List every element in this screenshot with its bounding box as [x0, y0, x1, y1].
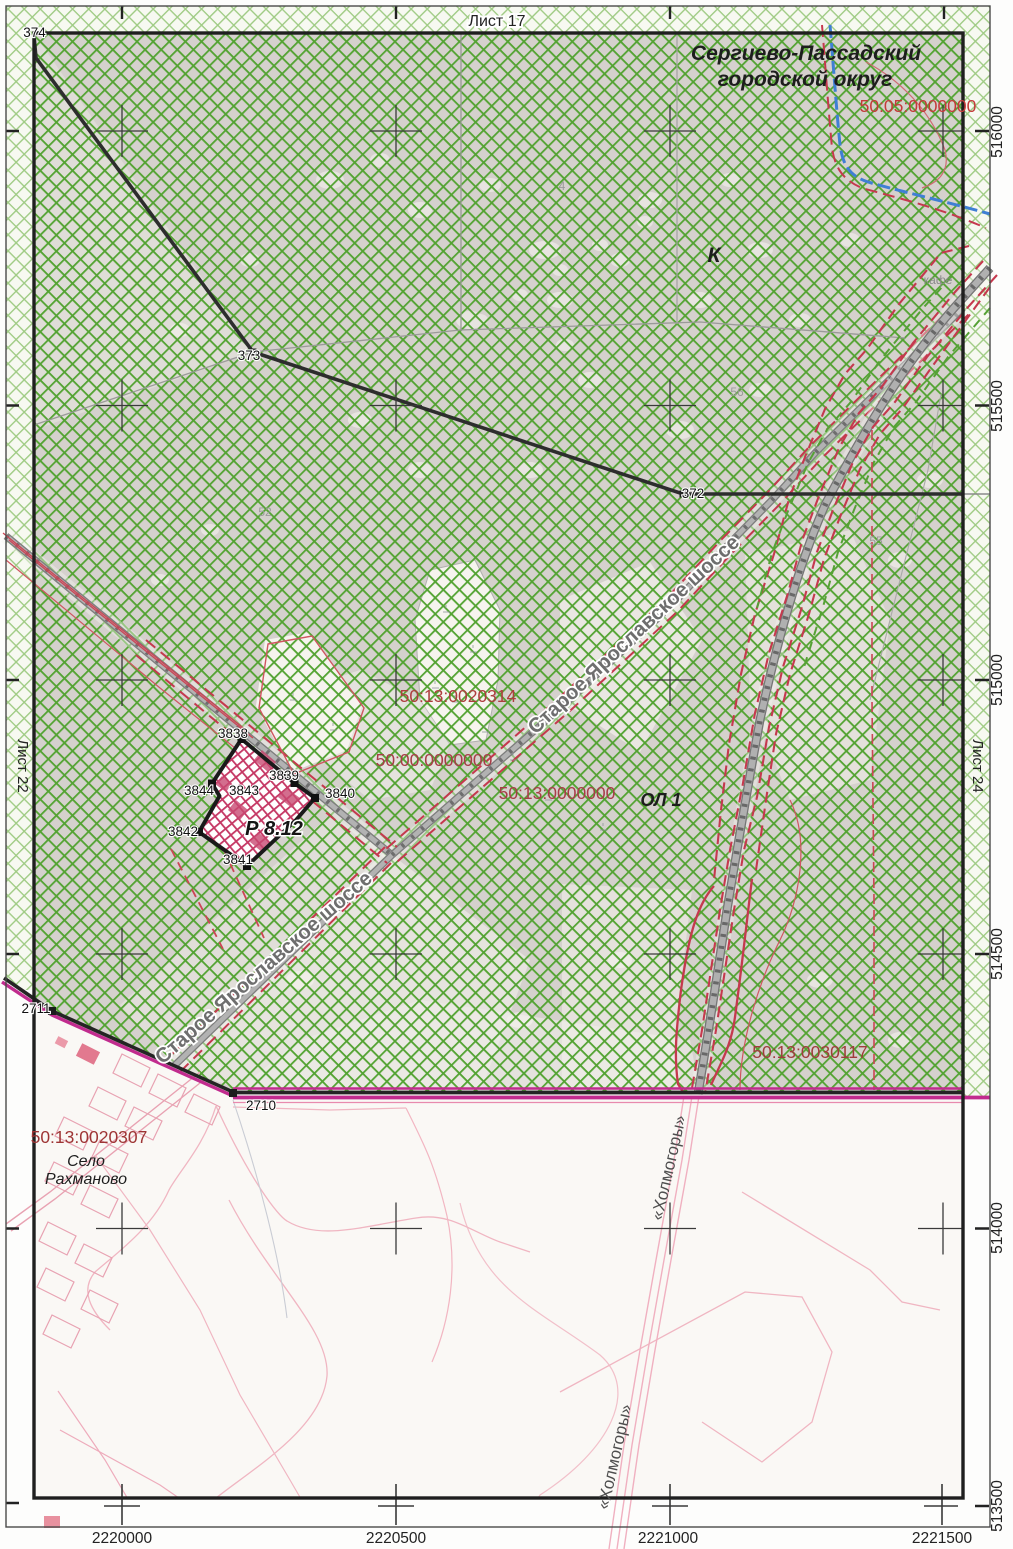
- svg-text:50:13:0000000: 50:13:0000000: [499, 783, 616, 803]
- svg-text:2220500: 2220500: [366, 1530, 427, 1547]
- svg-text:3840: 3840: [325, 786, 355, 801]
- svg-text:3842: 3842: [168, 824, 198, 839]
- svg-text:50:13:0030117: 50:13:0030117: [752, 1042, 868, 1062]
- svg-text:372: 372: [682, 486, 705, 501]
- svg-text:2711: 2711: [21, 1001, 50, 1016]
- svg-text:3844: 3844: [184, 783, 215, 798]
- svg-text:Р 8.12: Р 8.12: [245, 818, 303, 840]
- svg-text:373: 373: [238, 348, 261, 363]
- svg-text:514500: 514500: [989, 928, 1006, 980]
- svg-text:56: 56: [730, 385, 744, 399]
- svg-text:городской округ: городской округ: [718, 68, 893, 91]
- svg-text:514000: 514000: [989, 1202, 1006, 1254]
- svg-text:2221000: 2221000: [638, 1530, 699, 1547]
- svg-text:3838: 3838: [218, 726, 248, 741]
- svg-text:50:13:0020314: 50:13:0020314: [400, 686, 517, 706]
- svg-text:513500: 513500: [989, 1480, 1006, 1532]
- svg-text:3843: 3843: [229, 783, 259, 798]
- svg-text:50:05:0000000: 50:05:0000000: [860, 96, 977, 116]
- svg-text:374: 374: [23, 25, 46, 40]
- svg-text:Рахманово: Рахманово: [45, 1171, 127, 1188]
- svg-text:2220000: 2220000: [92, 1530, 153, 1547]
- svg-text:Лист 24: Лист 24: [969, 739, 986, 792]
- svg-text:кафе: кафе: [924, 273, 953, 287]
- svg-text:К: К: [708, 244, 723, 267]
- svg-text:3839: 3839: [269, 768, 299, 783]
- svg-text:4: 4: [559, 179, 566, 193]
- svg-text:2710: 2710: [246, 1098, 276, 1113]
- svg-text:516000: 516000: [989, 106, 1006, 158]
- svg-text:ОЛ 1: ОЛ 1: [640, 790, 681, 810]
- svg-text:Село: Село: [67, 1153, 105, 1170]
- svg-text:55: 55: [869, 534, 883, 548]
- svg-text:52: 52: [258, 505, 272, 519]
- svg-text:50:00:0000000: 50:00:0000000: [376, 750, 493, 770]
- svg-text:50:13:0020307: 50:13:0020307: [31, 1127, 148, 1147]
- svg-text:3841: 3841: [223, 852, 253, 867]
- svg-text:515000: 515000: [989, 654, 1006, 706]
- svg-text:Сергиево-Пассадский: Сергиево-Пассадский: [691, 42, 921, 65]
- svg-text:515500: 515500: [989, 380, 1006, 432]
- svg-text:Лист 17: Лист 17: [468, 13, 525, 30]
- svg-text:2221500: 2221500: [912, 1530, 973, 1547]
- svg-text:Лист 22: Лист 22: [14, 739, 31, 792]
